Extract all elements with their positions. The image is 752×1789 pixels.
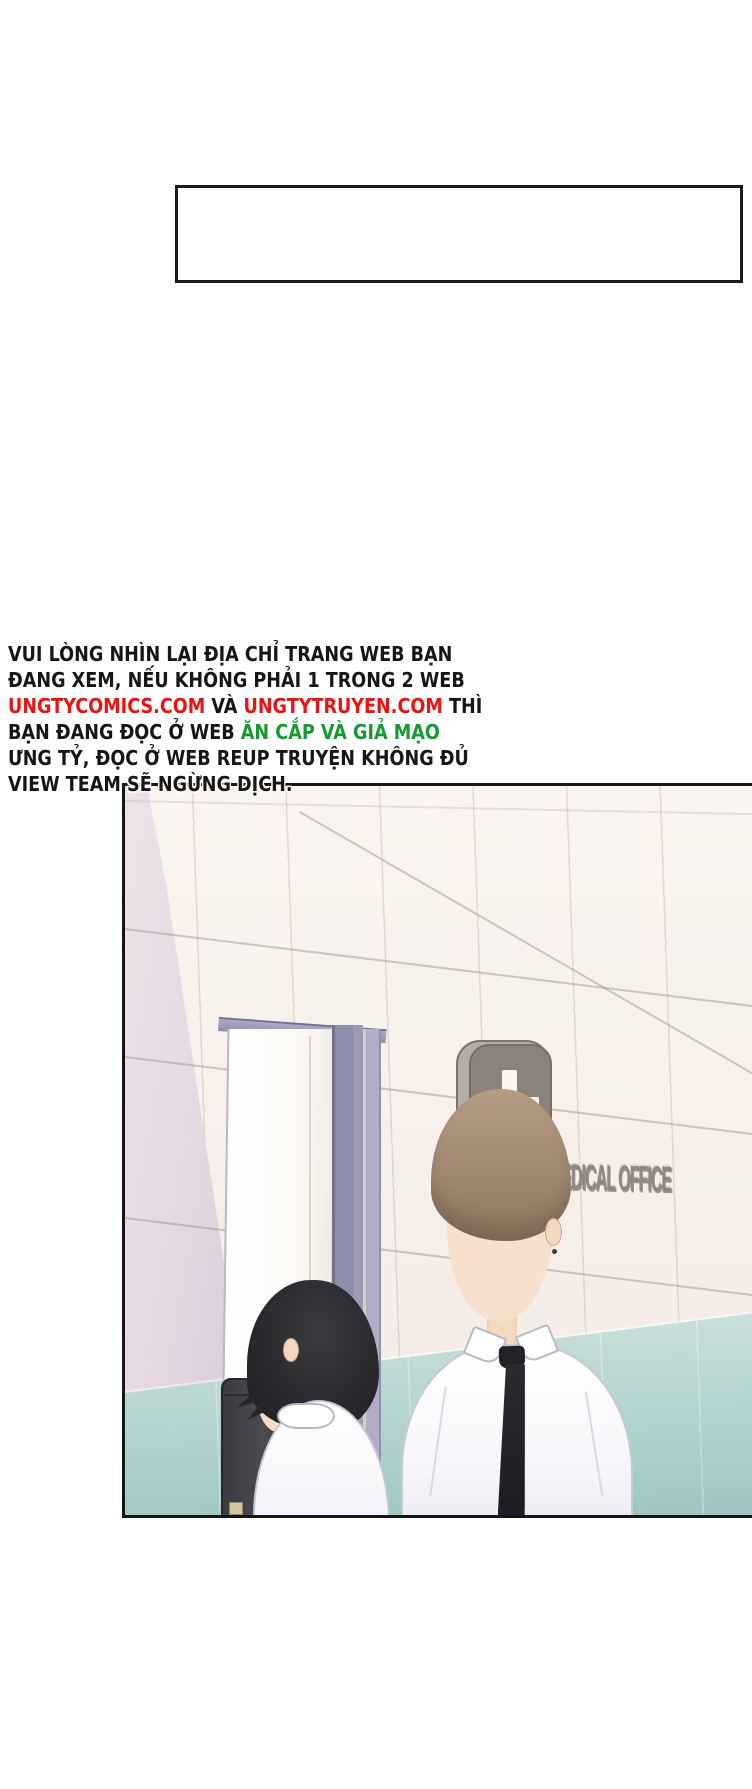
warning-line-2: ĐANG XEM, NẾU KHÔNG PHẢI 1 TRONG 2 WEB	[8, 667, 482, 693]
site-url-2: UNGTYTRUYEN.COM	[244, 694, 443, 718]
warning-line-4: BẠN ĐANG ĐỌC Ở WEB ĂN CẮP VÀ GIẢ MẠO	[8, 719, 482, 745]
warning-line-1: VUI LÒNG NHÌN LẠI ĐỊA CHỈ TRANG WEB BẠN	[8, 641, 482, 667]
shirt-collar	[277, 1403, 335, 1429]
site-url-1: UNGTYCOMICS.COM	[8, 694, 205, 718]
warning-line-4-start: BẠN ĐANG ĐỌC Ở WEB	[8, 720, 241, 744]
warning-line-3: UNGTYCOMICS.COM VÀ UNGTYTRUYEN.COM THÌ	[8, 693, 482, 719]
comic-page: VUI LÒNG NHÌN LẠI ĐỊA CHỈ TRANG WEB BẠN …	[0, 0, 752, 1789]
comic-panel: MEDICAL OFFICE	[122, 783, 752, 1518]
ear	[545, 1218, 562, 1246]
notice-box	[175, 185, 743, 283]
warning-line-3-end: THÌ	[443, 694, 482, 718]
earring	[552, 1249, 557, 1254]
warning-line-3-mid: VÀ	[205, 694, 243, 718]
ear	[283, 1338, 299, 1362]
warning-line-6: VIEW TEAM SẼ NGỪNG DỊCH.	[8, 771, 482, 797]
warning-highlight: ĂN CẮP VÀ GIẢ MẠO	[241, 720, 440, 744]
warning-text: VUI LÒNG NHÌN LẠI ĐỊA CHỈ TRANG WEB BẠN …	[8, 641, 482, 797]
warning-line-5: ƯNG TỶ, ĐỌC Ở WEB REUP TRUYỆN KHÔNG ĐỦ	[8, 745, 482, 771]
backpack-tag	[229, 1502, 243, 1515]
